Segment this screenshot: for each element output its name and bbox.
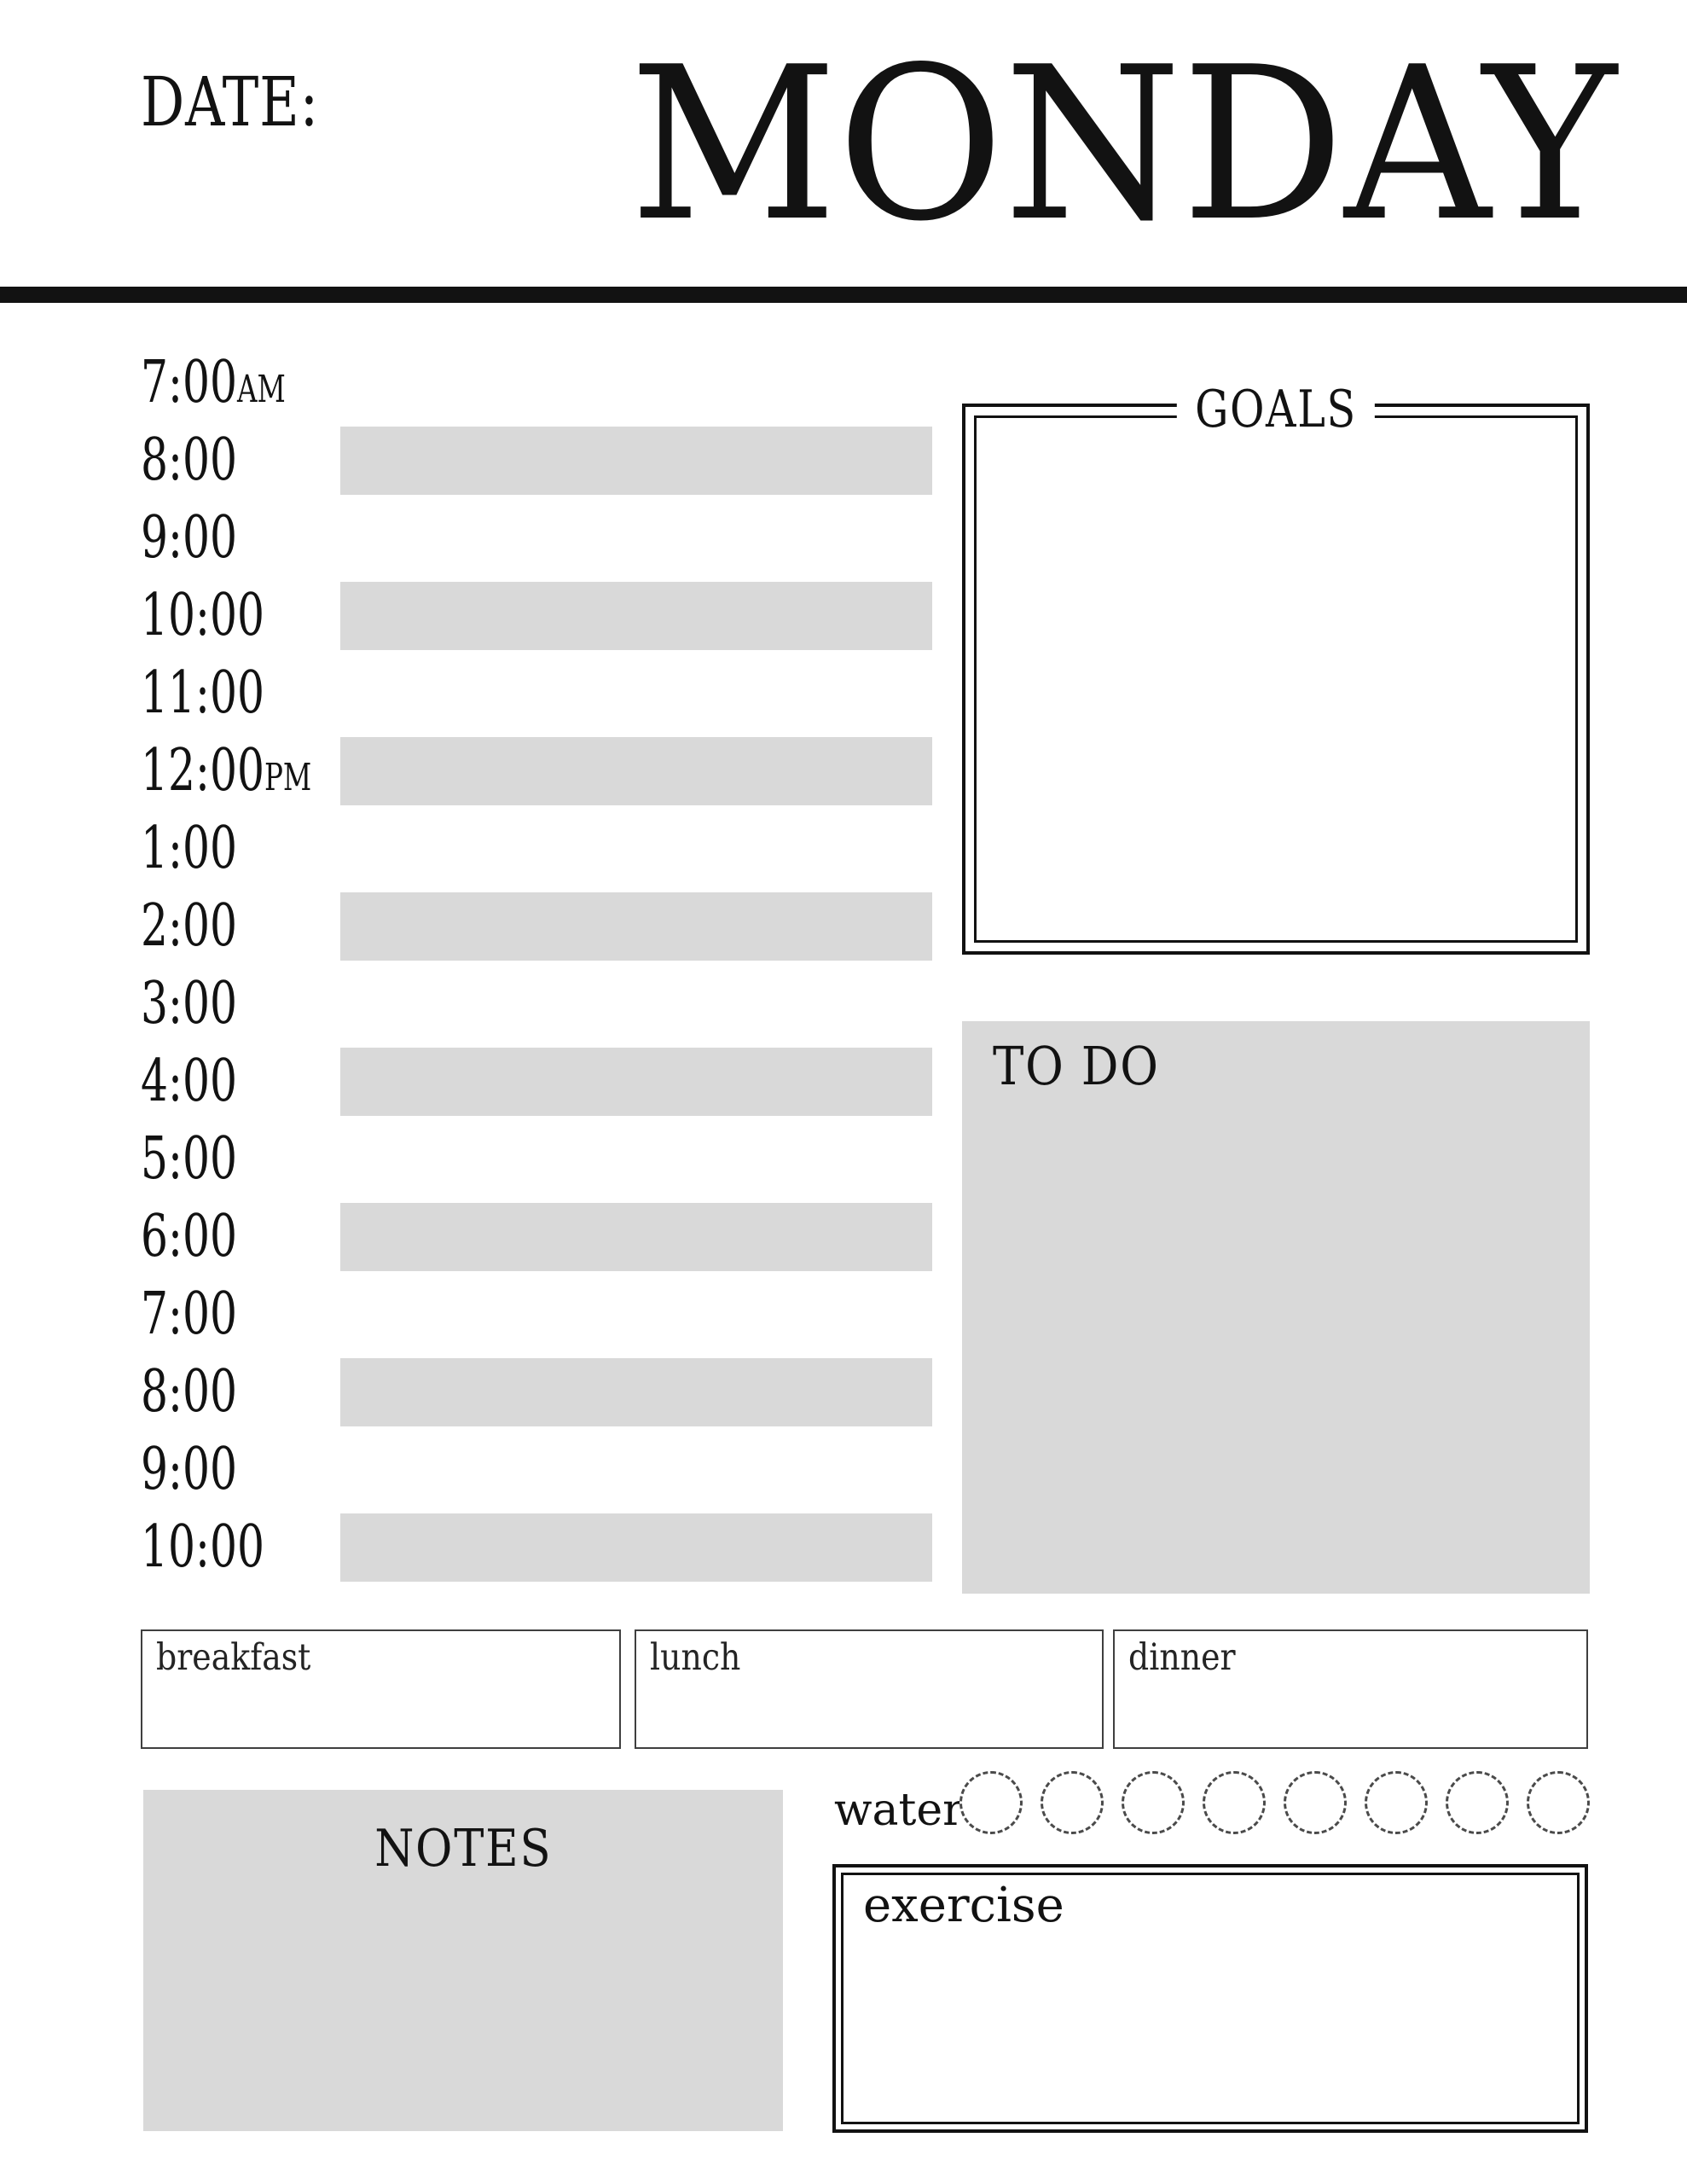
time-label: 5:00 [141, 1130, 237, 1188]
breakfast-label: breakfast [156, 1636, 310, 1679]
time-label: 3:00 [141, 975, 237, 1033]
time-text: 2:00 [141, 892, 237, 960]
time-label: 6:00 [141, 1208, 237, 1266]
time-label: 7:00AM [141, 354, 286, 412]
schedule-slot[interactable] [340, 1203, 932, 1271]
schedule-slot[interactable] [340, 737, 932, 805]
time-label: 2:00 [141, 897, 237, 955]
water-circle[interactable] [1446, 1771, 1509, 1834]
water-circle[interactable] [1527, 1771, 1590, 1834]
date-label: DATE: [141, 68, 319, 136]
time-label: 12:00PM [141, 742, 311, 800]
time-label: 4:00 [141, 1053, 237, 1111]
water-circle[interactable] [1122, 1771, 1185, 1834]
time-label: 9:00 [141, 1441, 237, 1499]
time-text: 7:00 [141, 349, 237, 416]
time-text: 1:00 [141, 815, 237, 882]
time-label: 10:00 [141, 587, 264, 645]
time-label: 1:00 [141, 820, 237, 878]
goals-title: GOALS [1177, 381, 1375, 438]
time-text: 8:00 [141, 1358, 237, 1426]
time-text: 8:00 [141, 427, 237, 494]
time-label: 8:00 [141, 432, 237, 490]
water-circle[interactable] [1203, 1771, 1266, 1834]
lunch-label: lunch [650, 1636, 740, 1679]
time-text: 7:00 [141, 1281, 237, 1348]
time-text: 9:00 [141, 1436, 237, 1503]
schedule-slot[interactable] [340, 427, 932, 495]
water-circle[interactable] [959, 1771, 1023, 1834]
time-text: 10:00 [141, 582, 264, 649]
water-label: water [834, 1786, 964, 1835]
time-text: 9:00 [141, 504, 237, 572]
time-label: 11:00 [141, 665, 264, 723]
lunch-box[interactable]: lunch [635, 1629, 1104, 1749]
schedule-slot[interactable] [340, 892, 932, 961]
ampm-suffix: PM [264, 756, 311, 799]
todo-box[interactable]: TO DO [962, 1021, 1590, 1594]
schedule-slot[interactable] [340, 1513, 932, 1582]
goals-inner-border [974, 415, 1578, 943]
time-text: 5:00 [141, 1125, 237, 1193]
todo-title: TO DO [993, 1035, 1160, 1097]
page: DATE: MONDAY 7:00AM8:009:0010:0011:0012:… [0, 0, 1687, 2184]
exercise-box[interactable]: exercise [832, 1864, 1588, 2133]
time-label: 9:00 [141, 509, 237, 567]
water-circle[interactable] [1365, 1771, 1428, 1834]
time-label: 8:00 [141, 1363, 237, 1421]
schedule-slot[interactable] [340, 1358, 932, 1426]
dinner-box[interactable]: dinner [1113, 1629, 1588, 1749]
time-text: 11:00 [141, 659, 264, 727]
time-text: 4:00 [141, 1048, 237, 1115]
time-text: 10:00 [141, 1513, 264, 1581]
schedule-slot[interactable] [340, 582, 932, 650]
time-label: 10:00 [141, 1519, 264, 1577]
exercise-inner-border [841, 1873, 1580, 2124]
header-divider [0, 287, 1687, 303]
time-text: 6:00 [141, 1203, 237, 1270]
goals-box[interactable]: GOALS [962, 404, 1590, 955]
notes-box[interactable]: NOTES [143, 1790, 783, 2131]
water-circle[interactable] [1284, 1771, 1347, 1834]
ampm-suffix: AM [237, 368, 286, 411]
water-circle[interactable] [1041, 1771, 1104, 1834]
time-label: 7:00 [141, 1286, 237, 1344]
breakfast-box[interactable]: breakfast [141, 1629, 621, 1749]
time-text: 3:00 [141, 970, 237, 1037]
day-title: MONDAY [629, 39, 1617, 251]
dinner-label: dinner [1128, 1636, 1236, 1679]
time-text: 12:00 [141, 737, 264, 804]
schedule-slot[interactable] [340, 1048, 932, 1116]
notes-title: NOTES [374, 1819, 552, 1879]
